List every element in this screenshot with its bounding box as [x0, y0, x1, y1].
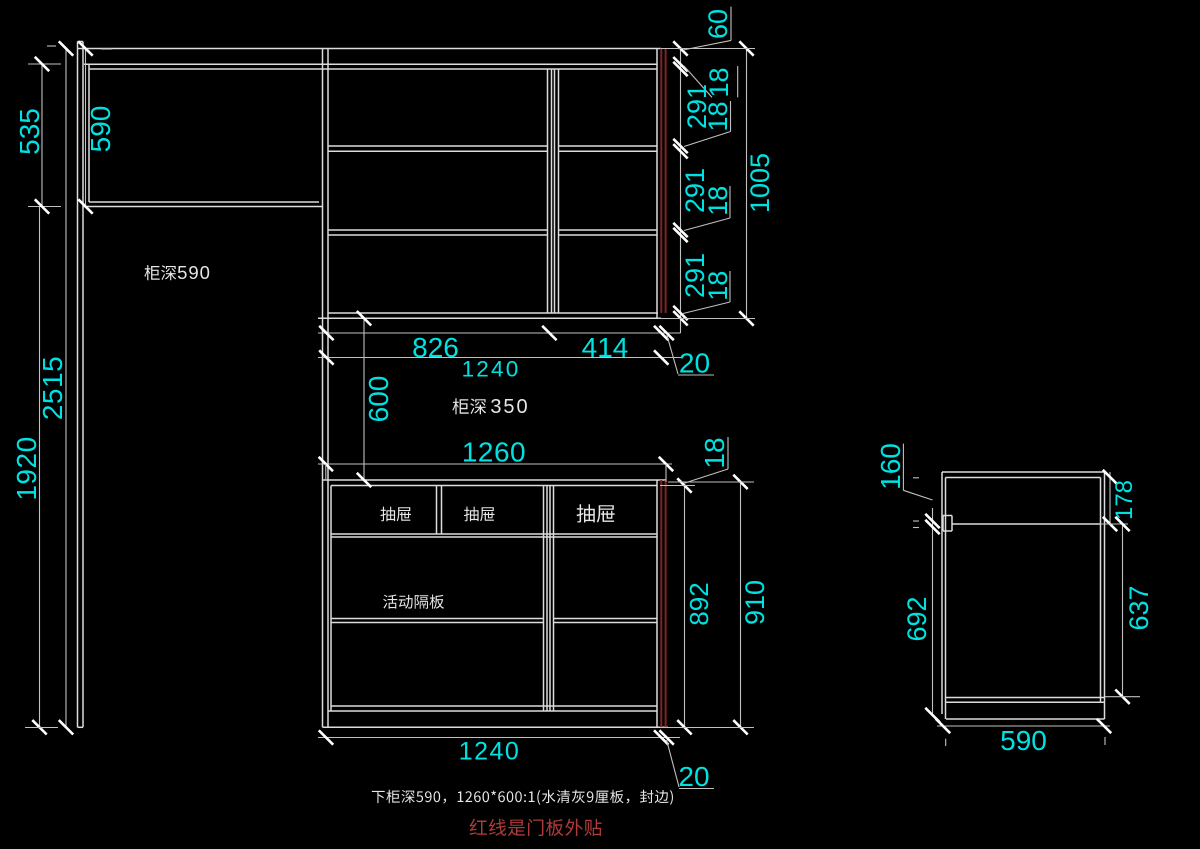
svg-text:2515: 2515 [37, 356, 68, 420]
svg-text:1920: 1920 [11, 436, 42, 500]
svg-text:1240: 1240 [459, 738, 521, 766]
svg-text:910: 910 [740, 580, 770, 625]
svg-text:414: 414 [582, 332, 629, 363]
svg-text:18: 18 [703, 271, 733, 301]
svg-text:892: 892 [684, 582, 714, 625]
svg-text:600: 600 [363, 376, 394, 423]
svg-text:18: 18 [703, 186, 733, 216]
svg-text:637: 637 [1124, 585, 1154, 630]
svg-text:590: 590 [85, 106, 116, 153]
svg-text:18: 18 [699, 437, 730, 468]
svg-text:18: 18 [703, 101, 733, 131]
svg-text:692: 692 [902, 596, 932, 641]
svg-text:1005: 1005 [745, 153, 775, 213]
svg-text:178: 178 [1111, 480, 1138, 520]
svg-text:1260: 1260 [462, 437, 526, 468]
svg-text:826: 826 [412, 332, 459, 363]
svg-text:535: 535 [14, 108, 45, 155]
svg-text:160: 160 [875, 443, 906, 490]
svg-text:590: 590 [1000, 725, 1047, 756]
svg-text:590: 590 [177, 262, 211, 283]
svg-text:60: 60 [703, 9, 733, 39]
svg-text:350: 350 [490, 396, 529, 418]
svg-text:20: 20 [679, 348, 710, 379]
svg-text:20: 20 [678, 761, 709, 792]
svg-text:1240: 1240 [462, 357, 521, 382]
